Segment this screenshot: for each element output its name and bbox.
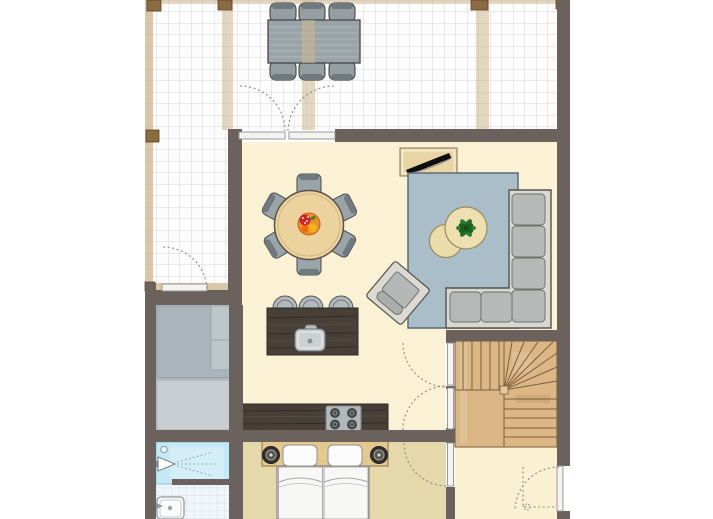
pillow bbox=[328, 445, 362, 466]
burner bbox=[347, 420, 357, 430]
shower bbox=[156, 442, 231, 484]
hall-door-leaf bbox=[448, 343, 454, 385]
burner bbox=[347, 408, 357, 418]
outdoor-chair bbox=[299, 3, 325, 22]
kitchen-island bbox=[267, 308, 358, 355]
terrace-side-floor bbox=[145, 130, 228, 284]
sofa-cushion bbox=[512, 226, 545, 257]
post bbox=[471, 0, 488, 10]
wall-living-stairs bbox=[446, 330, 570, 341]
hall-door-leaf bbox=[448, 388, 454, 429]
utility-cabinet-small bbox=[211, 306, 231, 340]
sofa-cushion bbox=[512, 258, 545, 289]
terrace-door-leaf bbox=[239, 132, 285, 139]
wall-utility-kitchen bbox=[229, 305, 243, 519]
outdoor-chair bbox=[270, 3, 296, 22]
bar-stools bbox=[273, 296, 353, 308]
floor-plan bbox=[0, 0, 713, 519]
front-door-leaf bbox=[557, 466, 563, 511]
duvet bbox=[324, 467, 368, 519]
shower-screen-wall bbox=[172, 479, 233, 485]
post bbox=[218, 0, 232, 10]
fruit-bowl bbox=[298, 213, 320, 235]
stair-pivot bbox=[500, 386, 508, 394]
outdoor-chair bbox=[329, 3, 355, 22]
island-sink bbox=[295, 325, 325, 351]
burner bbox=[330, 420, 340, 430]
pergola-beam-3 bbox=[476, 0, 489, 130]
shower-valve bbox=[161, 446, 167, 452]
headboard bbox=[262, 441, 388, 466]
utility-room bbox=[157, 306, 231, 430]
floor-plan-drawing bbox=[0, 0, 713, 519]
pergola-edge-beam-left bbox=[145, 0, 153, 290]
bedroom-door-leaf bbox=[448, 443, 454, 486]
sofa-cushion bbox=[450, 292, 481, 322]
terrace-side-door-leaf bbox=[162, 284, 207, 291]
wall-hall bbox=[446, 330, 455, 343]
tv-sideboard bbox=[400, 148, 457, 176]
sofa-cushion bbox=[481, 292, 512, 322]
washbasin bbox=[156, 497, 184, 519]
burner bbox=[330, 408, 340, 418]
stove bbox=[326, 406, 361, 431]
sofa-cushion bbox=[512, 194, 545, 225]
wall-top bbox=[335, 129, 570, 142]
wall-hall bbox=[446, 487, 455, 519]
wall-terrace-utility bbox=[145, 290, 242, 305]
wall-kitchen-bedroom bbox=[145, 430, 455, 442]
reading-lamp bbox=[263, 447, 280, 464]
pergola-beam-1 bbox=[222, 0, 233, 130]
utility-cabinet-low bbox=[157, 380, 231, 430]
kitchen-counter bbox=[238, 404, 388, 432]
wall-terrace-living bbox=[228, 129, 242, 305]
staircase bbox=[455, 341, 557, 447]
drain bbox=[308, 339, 313, 344]
post bbox=[146, 130, 159, 142]
pillow bbox=[283, 445, 317, 466]
terrace-door-leaf bbox=[289, 132, 335, 139]
wall-outer-right bbox=[557, 511, 570, 519]
reading-lamp bbox=[371, 447, 388, 464]
post bbox=[147, 0, 161, 11]
outdoor-chair bbox=[270, 61, 296, 80]
duvet bbox=[279, 467, 323, 519]
utility-cabinet-small bbox=[211, 340, 231, 370]
pergola-beam-over-table bbox=[302, 20, 315, 63]
sofa-cushion bbox=[512, 290, 545, 322]
outdoor-chair bbox=[329, 61, 355, 80]
outdoor-chair bbox=[299, 61, 325, 80]
bedroom bbox=[262, 441, 388, 519]
outdoor-dining-table bbox=[268, 20, 360, 63]
wall-outer-right bbox=[557, 0, 570, 466]
wall-outer-left bbox=[145, 283, 156, 519]
basin-drain bbox=[168, 506, 172, 510]
